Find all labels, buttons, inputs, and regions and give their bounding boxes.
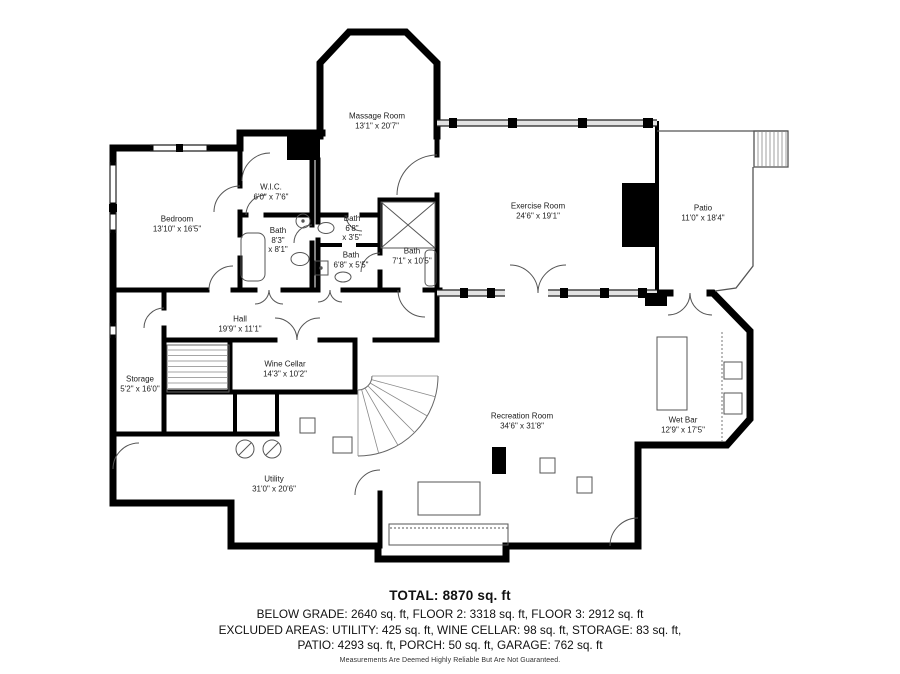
room-label-hall: Hall 19'9" x 11'1" [218, 315, 261, 334]
room-label-storage: Storage 5'2" x 16'0" [120, 375, 159, 394]
floor-areas: BELOW GRADE: 2640 sq. ft, FLOOR 2: 3318 … [0, 607, 900, 623]
excluded-areas-1: EXCLUDED AREAS: UTILITY: 425 sq. ft, WIN… [0, 623, 900, 639]
window-walls [109, 118, 722, 528]
interior-walls [113, 123, 657, 546]
room-label-bath-4: Bath 7'1" x 10'5" [392, 247, 431, 266]
room-label-exercise-room: Exercise Room 24'6" x 19'1" [511, 202, 565, 221]
total-area: TOTAL: 8870 sq. ft [0, 588, 900, 603]
room-label-bath-1: Bath 8'3" x 8'1" [268, 226, 288, 255]
room-label-wet-bar: Wet Bar 12'9" x 17'5" [661, 416, 705, 435]
fireplace-icon [622, 183, 655, 247]
toilet-icon [335, 272, 351, 282]
table-icon [418, 482, 480, 515]
porch-edge [389, 524, 508, 545]
excluded-areas-2: PATIO: 4293 sq. ft, PORCH: 50 sq. ft, GA… [0, 638, 900, 654]
room-label-wine-cellar: Wine Cellar 14'3" x 10'2" [263, 360, 307, 379]
curved-stairs-icon [358, 376, 438, 456]
fireplace-blocks [287, 133, 667, 474]
appliance-icon [724, 393, 742, 414]
room-label-bedroom: Bedroom 13'10" x 16'5" [153, 215, 201, 234]
straight-stairs-icon [167, 345, 229, 392]
room-label-massage-room: Massage Room 13'1" x 20'7" [349, 112, 405, 131]
room-label-utility: Utility 31'0" x 20'6" [252, 475, 296, 494]
toilet-icon [318, 223, 334, 234]
bathtub-icon [241, 233, 265, 281]
appliance-icon [724, 362, 742, 379]
floor-plan-page: Massage Room 13'1" x 20'7" W.I.C. 6'0" x… [0, 0, 900, 674]
disclaimer: Measurements Are Deemed Highly Reliable … [0, 657, 900, 664]
room-label-bath-3: Bath 6'8" x 5'5" [334, 251, 369, 270]
room-label-patio: Patio 11'0" x 18'4" [681, 204, 724, 223]
room-label-wic: W.I.C. 6'0" x 7'6" [254, 183, 289, 202]
bar-island-icon [657, 337, 687, 410]
floorplan-drawing [0, 0, 900, 674]
area-summary: TOTAL: 8870 sq. ft BELOW GRADE: 2640 sq.… [0, 588, 900, 664]
room-label-recreation-room: Recreation Room 34'6" x 31'8" [491, 412, 553, 431]
patio-stairs-icon [758, 131, 786, 167]
toilet-icon [291, 253, 309, 266]
room-label-bath-2: Bath 6'8" x 3'5" [342, 214, 362, 243]
